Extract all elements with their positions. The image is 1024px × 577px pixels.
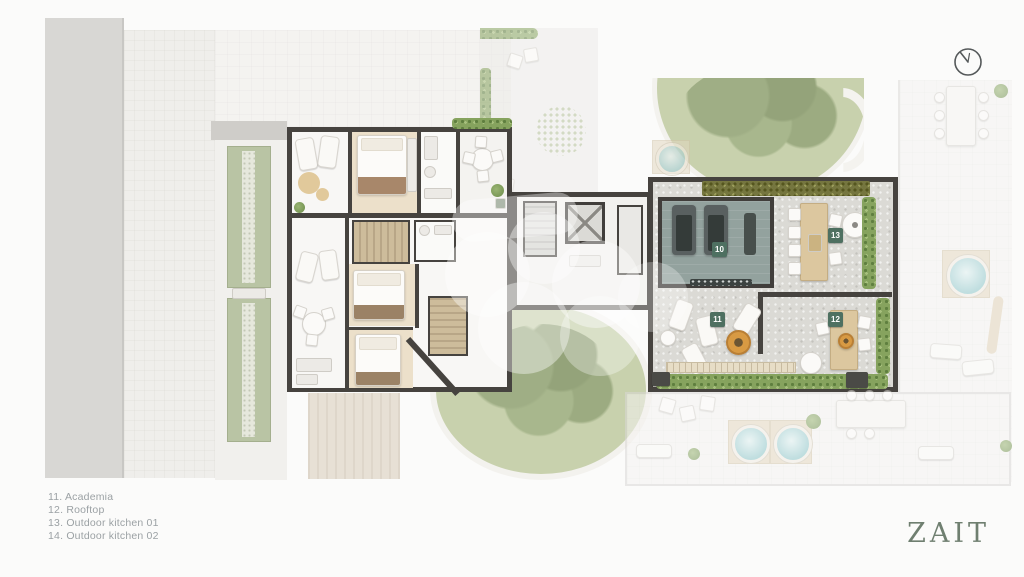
table-runner (808, 234, 822, 252)
lounge-chair (318, 249, 340, 281)
chair (934, 110, 945, 121)
potted-plant (294, 202, 305, 213)
grill (846, 372, 868, 388)
storage-room (617, 205, 643, 275)
bench-seat (296, 374, 318, 385)
bedroom (349, 330, 413, 388)
wall (417, 132, 421, 215)
blanket (356, 372, 400, 385)
planter (227, 298, 271, 442)
chair (864, 428, 875, 439)
brand-logo: ZAIT (907, 518, 990, 549)
chair (857, 337, 871, 351)
chair (846, 390, 857, 401)
blanket (358, 177, 406, 194)
pillow (357, 273, 401, 286)
elevator (565, 202, 605, 244)
legend-item-outdoor-kitchen-02: 14. Outdoor kitchen 02 (48, 530, 159, 543)
chair (788, 244, 801, 257)
treadmill (672, 205, 696, 255)
hedge (452, 118, 512, 129)
lounge-chair (636, 444, 672, 458)
upper-roof-band (215, 30, 511, 127)
chair (828, 251, 843, 266)
counter (569, 255, 601, 267)
chair (934, 128, 945, 139)
chair (679, 405, 697, 423)
cooktop (838, 333, 854, 349)
chair (321, 307, 336, 322)
neighbor-roof-tiled (124, 30, 215, 478)
legend: 11. Academia 12. Rooftop 13. Outdoor kit… (48, 491, 159, 543)
wall (758, 292, 763, 354)
dining-table (836, 400, 906, 428)
pillow (361, 138, 403, 151)
wall (287, 213, 512, 218)
room-badge-rooftop: 11 (710, 312, 725, 327)
chair (788, 262, 801, 275)
shrub (806, 414, 821, 429)
wall (415, 264, 419, 328)
chair (828, 213, 843, 228)
hedge (862, 197, 876, 289)
hot-tub (774, 425, 812, 463)
dining-table (946, 86, 976, 146)
chair (506, 52, 524, 70)
service-core (512, 192, 652, 310)
chair (978, 110, 989, 121)
round-rug (316, 188, 329, 201)
chair (490, 149, 505, 164)
hot-tub (947, 255, 989, 297)
chair (462, 151, 476, 165)
chair (978, 92, 989, 103)
chair (882, 390, 893, 401)
hedge (876, 298, 890, 374)
hot-tub (732, 425, 770, 463)
north-indicator-icon (950, 44, 986, 80)
tree-canopy (677, 78, 847, 173)
wood-deck (308, 393, 400, 479)
bed (355, 334, 401, 386)
wardrobe (407, 138, 417, 192)
wall (456, 132, 460, 215)
toilet (424, 166, 436, 178)
lounge-chair (930, 343, 963, 360)
chair (934, 92, 945, 103)
table-round (800, 352, 822, 374)
bathroom (414, 220, 456, 262)
lounge-chair (317, 135, 340, 169)
hedge (480, 28, 538, 39)
tree (536, 106, 586, 156)
chair (699, 395, 716, 412)
pebble-channel (242, 303, 255, 437)
grill (652, 372, 670, 386)
chair (475, 136, 488, 149)
bathroom (420, 132, 457, 213)
terrace (292, 132, 349, 215)
grill-center (852, 222, 858, 228)
pebble-channel (242, 151, 255, 283)
chair (978, 128, 989, 139)
blanket (354, 305, 404, 319)
treadmill-belt (676, 215, 692, 251)
neighbor-roof-slab (45, 18, 124, 478)
water-feature (232, 288, 266, 299)
chair (523, 47, 539, 63)
potted-plant (994, 84, 1008, 98)
pillow (359, 337, 397, 350)
sofa (296, 358, 332, 372)
chair (864, 390, 875, 401)
legend-item-outdoor-kitchen-01: 13. Outdoor kitchen 01 (48, 517, 159, 530)
potted-plant (491, 184, 504, 197)
chair (857, 315, 872, 330)
planter-box (702, 181, 870, 196)
toilet (419, 225, 430, 236)
lounge-chair (295, 250, 320, 283)
chair (846, 428, 857, 439)
legend-item-academia: 11. Academia (48, 491, 159, 504)
chair (788, 226, 801, 239)
room-badge-outdoor-kitchen-01: 13 (828, 228, 843, 243)
shrub (688, 448, 700, 460)
side-table (660, 330, 676, 346)
bedroom (351, 132, 417, 213)
weight-machine (744, 213, 756, 255)
chair (788, 208, 801, 221)
dumbbell-rack (690, 279, 752, 286)
hot-tub (656, 143, 688, 175)
wall (348, 132, 352, 215)
planter (227, 146, 271, 288)
staircase (352, 220, 410, 264)
lounge-chair (918, 446, 954, 460)
bed (353, 270, 405, 320)
vanity (434, 225, 452, 235)
wall (758, 292, 892, 297)
vanity (424, 188, 452, 199)
terrace (292, 220, 345, 388)
concrete-lintel (211, 121, 287, 140)
wall (349, 327, 413, 330)
legend-item-rooftop: 12. Rooftop (48, 504, 159, 517)
lounge-chair (294, 137, 318, 172)
staircase (523, 201, 557, 257)
room-badge-outdoor-kitchen-02: 12 (828, 312, 843, 327)
terrace (459, 132, 507, 213)
fire-pit (726, 330, 751, 355)
bedroom (349, 264, 415, 326)
chair (305, 333, 318, 346)
floor-plan-canvas: 10 13 11 12 (0, 0, 1024, 577)
staircase (428, 296, 468, 356)
potted-plant (495, 198, 506, 209)
shower (424, 136, 438, 160)
room-badge-gym: 10 (712, 242, 727, 257)
bed (357, 135, 407, 195)
chair (476, 169, 489, 182)
dining-table (800, 203, 828, 281)
bench (666, 362, 796, 373)
shrub (1000, 440, 1012, 452)
